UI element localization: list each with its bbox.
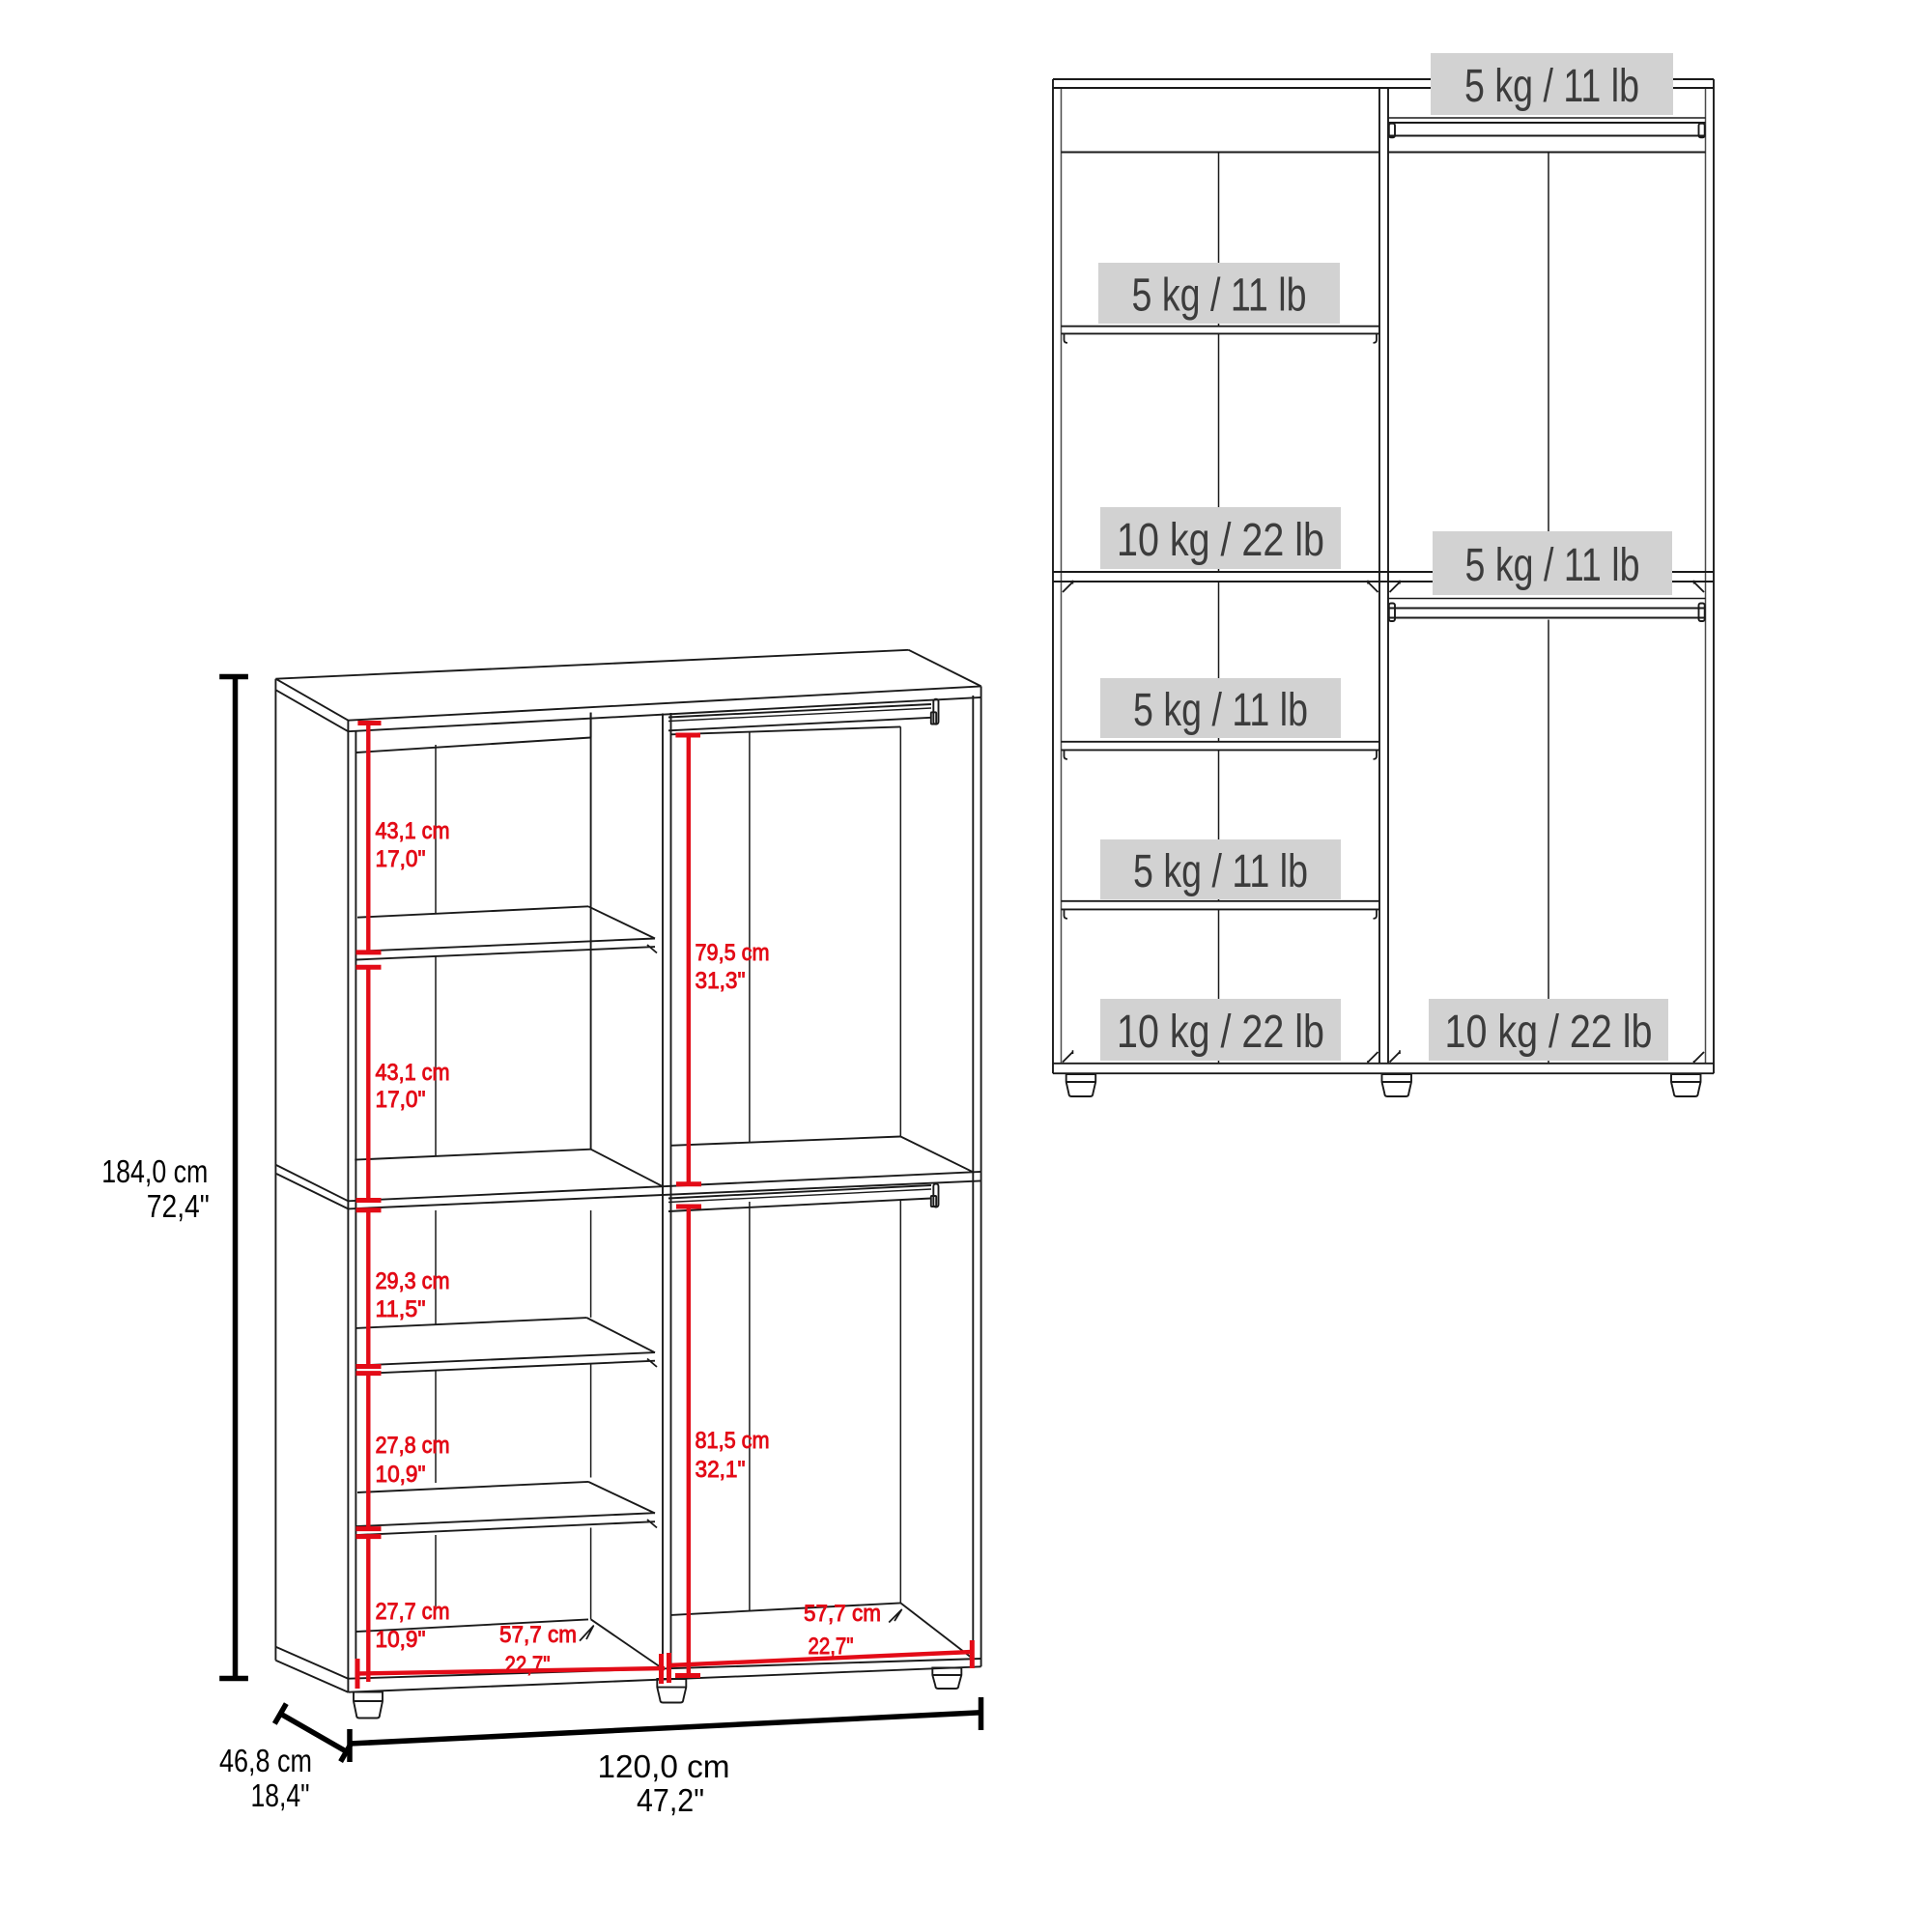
svg-text:10,9": 10,9"	[376, 1462, 426, 1488]
svg-text:10,9": 10,9"	[376, 1627, 426, 1653]
svg-text:27,7 cm: 27,7 cm	[376, 1599, 450, 1625]
svg-text:29,3 cm: 29,3 cm	[376, 1268, 450, 1294]
svg-text:120,0 cm: 120,0 cm	[598, 1748, 730, 1784]
svg-text:46,8 cm: 46,8 cm	[219, 1743, 312, 1778]
svg-text:27,8 cm: 27,8 cm	[376, 1433, 450, 1459]
svg-text:81,5 cm: 81,5 cm	[696, 1428, 770, 1454]
svg-text:11,5": 11,5"	[376, 1296, 426, 1322]
svg-text:57,7 cm: 57,7 cm	[804, 1601, 881, 1627]
svg-text:5 kg / 11 lb: 5 kg / 11 lb	[1133, 846, 1308, 897]
svg-text:72,4": 72,4"	[147, 1188, 210, 1224]
svg-text:31,3": 31,3"	[696, 968, 746, 994]
svg-text:22,7": 22,7"	[809, 1634, 854, 1660]
svg-text:184,0 cm: 184,0 cm	[101, 1153, 208, 1189]
svg-text:57,7 cm: 57,7 cm	[499, 1622, 577, 1648]
svg-text:79,5 cm: 79,5 cm	[696, 940, 770, 966]
svg-text:5 kg / 11 lb: 5 kg / 11 lb	[1465, 540, 1640, 591]
svg-text:17,0": 17,0"	[376, 1087, 426, 1113]
svg-text:18,4": 18,4"	[251, 1777, 310, 1813]
svg-text:32,1": 32,1"	[696, 1457, 746, 1483]
svg-text:17,0": 17,0"	[376, 846, 426, 872]
svg-text:5 kg / 11 lb: 5 kg / 11 lb	[1133, 685, 1308, 736]
svg-text:43,1 cm: 43,1 cm	[376, 818, 450, 844]
svg-text:47,2": 47,2"	[637, 1782, 704, 1818]
svg-text:10 kg / 22 lb: 10 kg / 22 lb	[1445, 1007, 1653, 1058]
svg-text:22,7": 22,7"	[505, 1652, 551, 1678]
svg-text:10 kg / 22 lb: 10 kg / 22 lb	[1117, 515, 1324, 566]
svg-text:10 kg / 22 lb: 10 kg / 22 lb	[1117, 1007, 1324, 1058]
svg-text:5 kg / 11 lb: 5 kg / 11 lb	[1132, 270, 1307, 322]
svg-text:43,1 cm: 43,1 cm	[376, 1060, 450, 1086]
svg-text:5 kg / 11 lb: 5 kg / 11 lb	[1464, 61, 1639, 112]
